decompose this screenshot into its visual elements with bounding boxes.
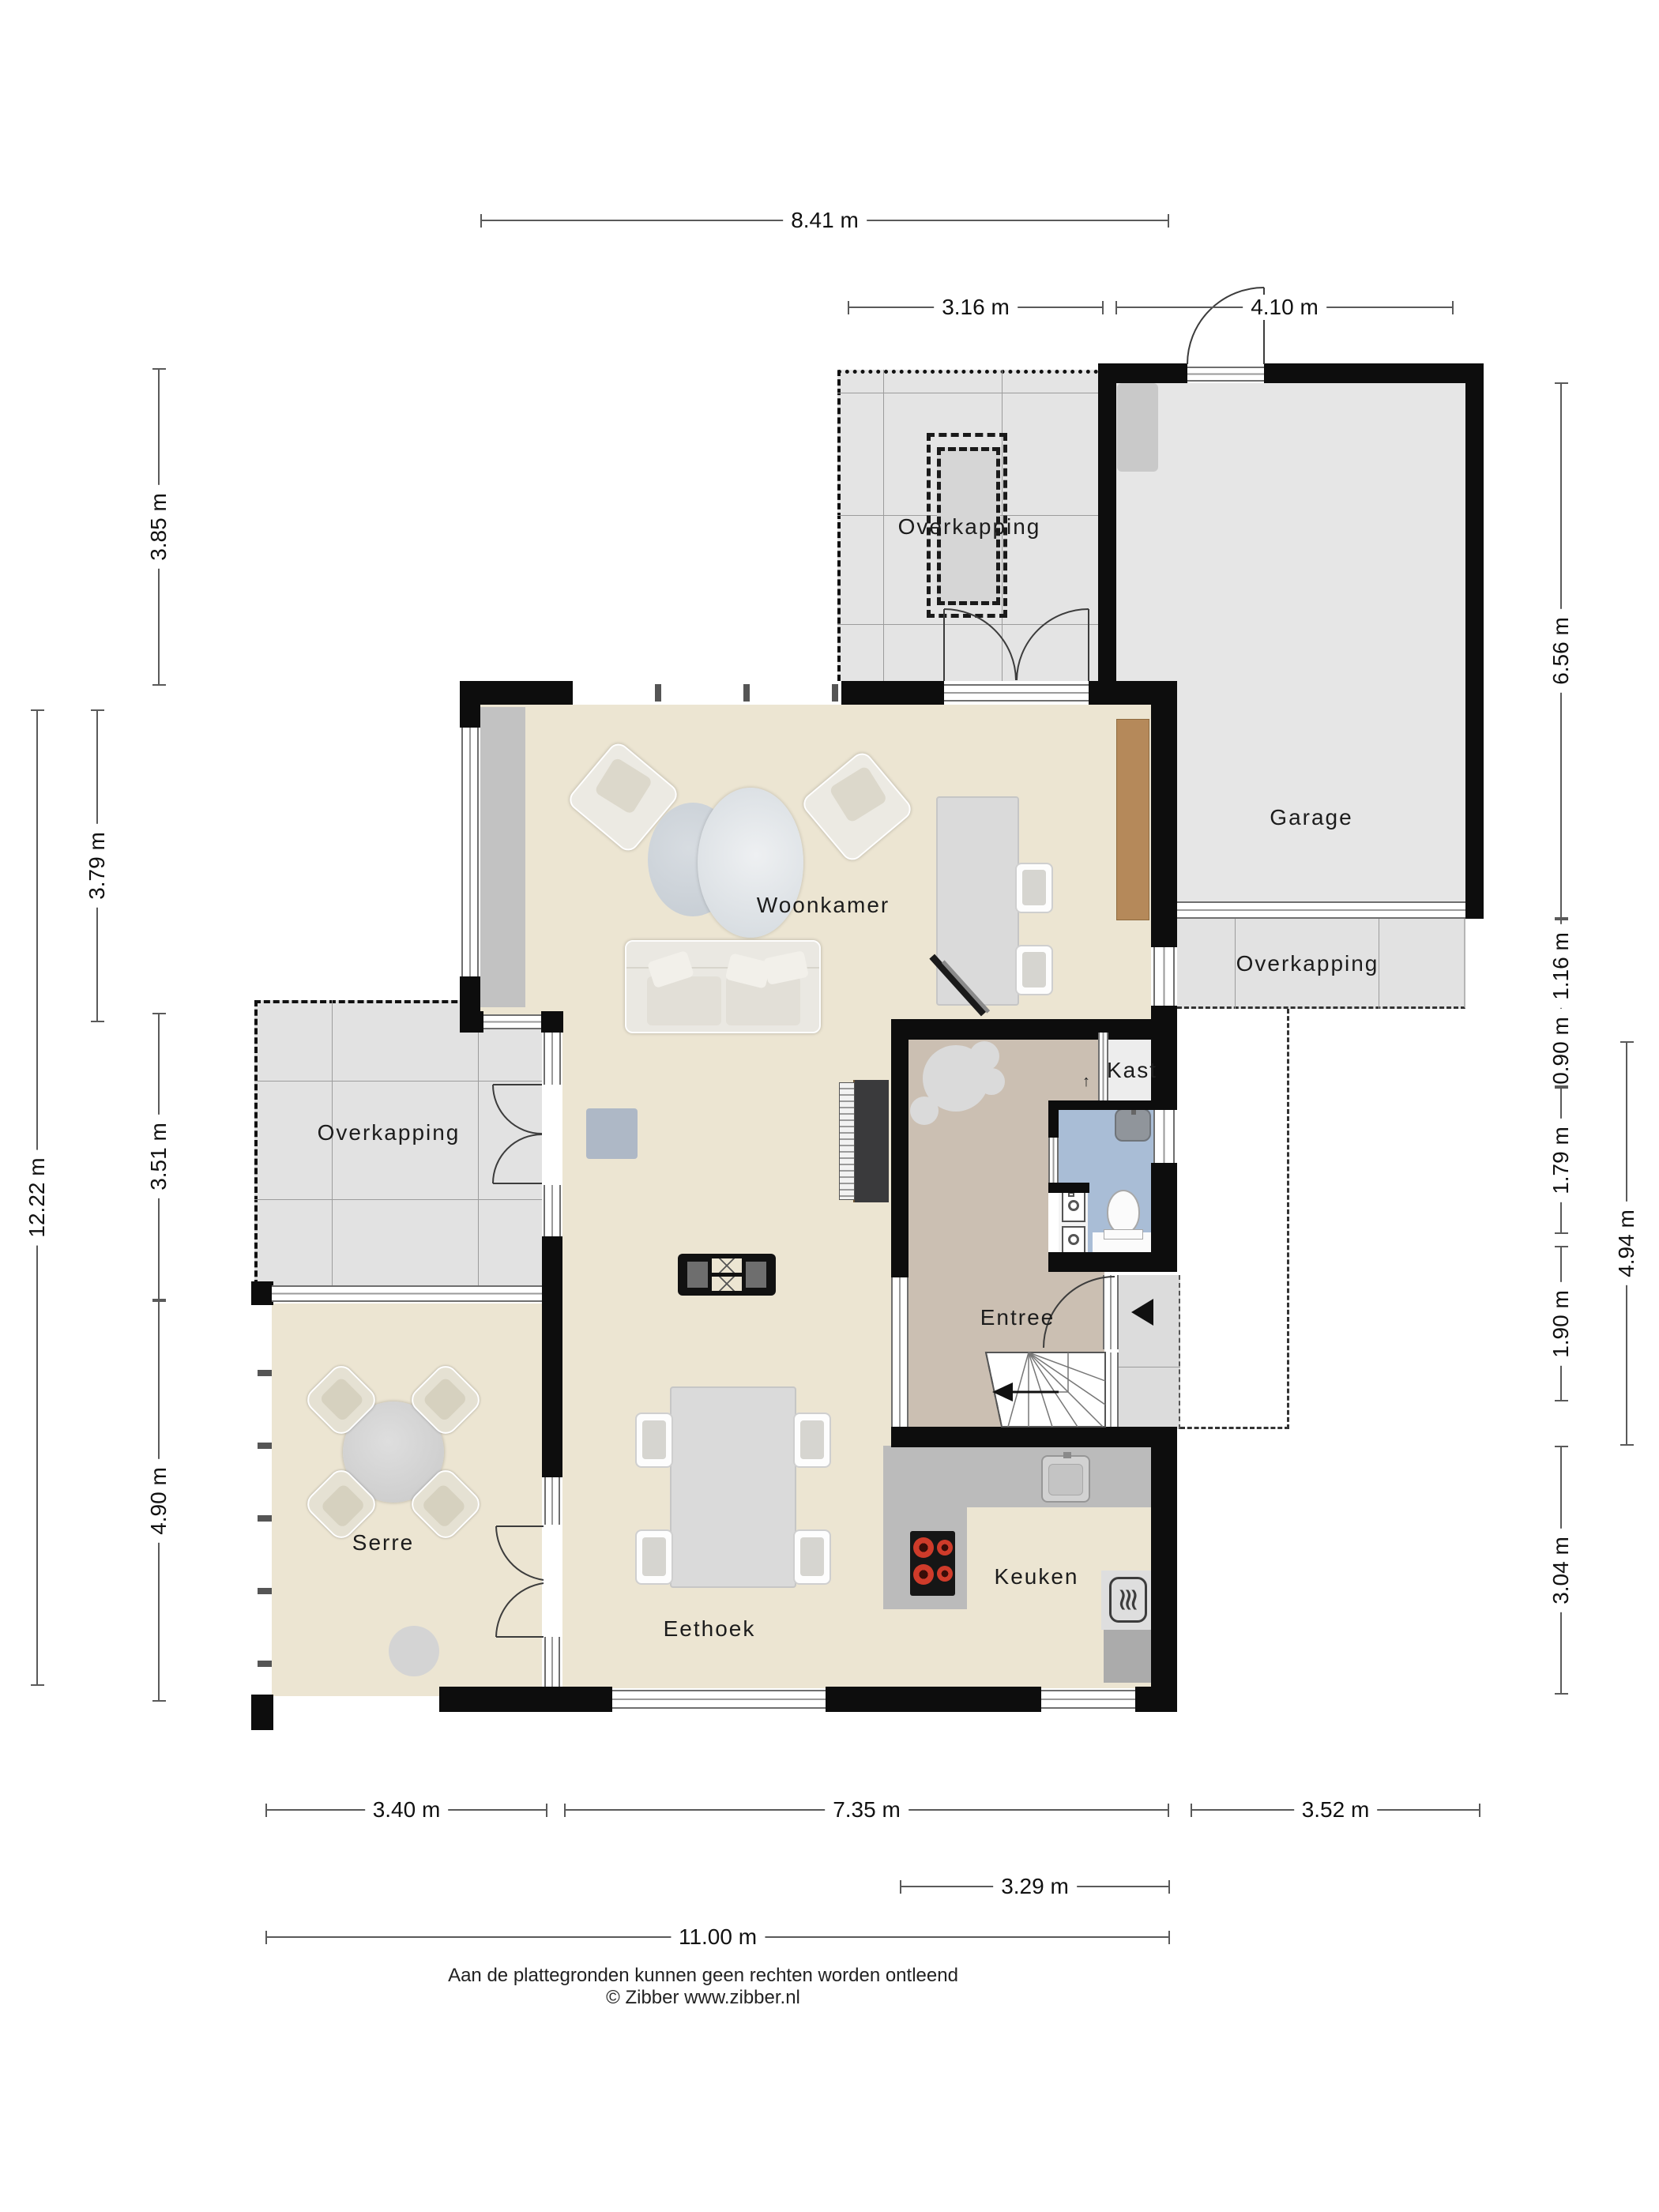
plan-linework — [0, 0, 1659, 2212]
dimension-3.04m: 3.04 m — [1560, 1446, 1562, 1695]
dimension-3.51m: 3.51 m — [158, 1013, 160, 1300]
room-label-garage: Garage — [1270, 805, 1352, 830]
dimension-8.41m: 8.41 m — [480, 220, 1169, 221]
dimension-3.85m: 3.85 m — [158, 368, 160, 686]
staircase — [986, 1352, 1105, 1427]
dimension-3.52m: 3.52 m — [1191, 1809, 1480, 1811]
door-arc — [493, 1134, 542, 1183]
dimension-3.29m: 3.29 m — [900, 1886, 1170, 1887]
room-label-serre: Serre — [352, 1530, 414, 1556]
dimension-3.79m: 3.79 m — [96, 709, 98, 1022]
dimension-4.90m: 4.90 m — [158, 1300, 160, 1702]
dimension-1.90m: 1.90 m — [1560, 1246, 1562, 1401]
dimension-4.10m: 4.10 m — [1115, 307, 1454, 308]
dimension-12.22m: 12.22 m — [36, 709, 38, 1686]
room-label-woonkamer: Woonkamer — [757, 893, 890, 918]
footer-disclaimer: Aan de plattegronden kunnen geen rechten… — [448, 1965, 958, 1987]
door-arc — [496, 1583, 544, 1637]
dimension-1.79m: 1.79 m — [1560, 1087, 1562, 1234]
dimension-6.56m: 6.56 m — [1560, 382, 1562, 919]
door-arc — [496, 1526, 544, 1580]
room-label-keuken: Keuken — [995, 1564, 1079, 1589]
door-arc — [493, 1085, 542, 1134]
room-label-overkapping-left: Overkapping — [318, 1120, 461, 1145]
dimension-3.40m: 3.40 m — [265, 1809, 547, 1811]
door-arc — [1017, 609, 1089, 680]
dimension-7.35m: 7.35 m — [564, 1809, 1169, 1811]
dimension-3.16m: 3.16 m — [848, 307, 1104, 308]
room-label-overkapping-right: Overkapping — [1236, 951, 1379, 976]
dimension-11.00m: 11.00 m — [265, 1936, 1170, 1938]
dimension-1.16m: 1.16 m — [1560, 919, 1562, 1014]
floorplan-page: ≋ ↑ — [0, 0, 1659, 2212]
entry-arrow — [1131, 1299, 1153, 1326]
room-label-eethoek: Eethoek — [664, 1616, 756, 1642]
footer-copyright: © Zibber www.zibber.nl — [606, 1987, 800, 2009]
room-label-entree: Entree — [980, 1305, 1055, 1330]
door-arc — [944, 609, 1016, 680]
dimension-4.94m: 4.94 m — [1626, 1041, 1627, 1446]
room-label-overkapping-top: Overkapping — [898, 514, 1041, 540]
dimension-0.90m: 0.90 m — [1560, 1014, 1562, 1087]
room-label-kast: Kast — [1107, 1058, 1157, 1083]
